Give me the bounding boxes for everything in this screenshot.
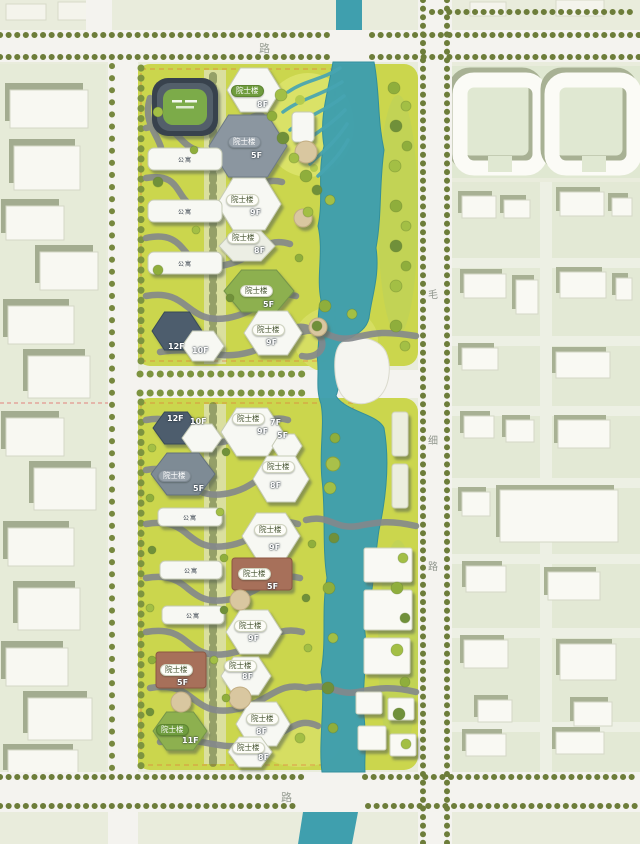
building-badge: 院士楼: [228, 136, 261, 148]
building-label: 院士楼: [233, 137, 256, 146]
building-badge: 院士楼: [226, 194, 259, 206]
floor-label: 9F: [269, 543, 280, 552]
building-badge: 院士楼: [224, 660, 257, 672]
master-plan-canvas: 院士楼 院士楼 院士楼 院士楼 院士楼 院士楼 院士楼 院士楼 院士楼 院士楼 …: [0, 0, 640, 844]
building-label: 院士楼: [251, 714, 274, 723]
floor-label: 5F: [277, 431, 288, 440]
road-label-right-2: 细: [428, 432, 438, 447]
floor-label: 5F: [263, 300, 274, 309]
floor-label: 8F: [257, 100, 268, 109]
floor-label: 8F: [254, 246, 265, 255]
floor-label: 8F: [270, 481, 281, 490]
building-label: 院士楼: [236, 86, 259, 95]
floor-label: 8F: [242, 672, 253, 681]
building-badge: 院士楼: [246, 713, 279, 725]
building-badge: 院士楼: [227, 232, 260, 244]
building-badge: 院士楼: [252, 324, 285, 336]
building-label: 院士楼: [259, 525, 282, 534]
floor-label: 9F: [257, 427, 268, 436]
building-label: 院士楼: [237, 743, 260, 752]
building-label: 院士楼: [237, 414, 260, 423]
apartment-label: 公寓: [186, 611, 200, 620]
building-badge: 院士楼: [156, 724, 189, 736]
road-label-right-1: 毛: [428, 286, 438, 301]
river-island: [326, 457, 340, 471]
floor-label: 5F: [177, 678, 188, 687]
building-label: 院士楼: [163, 471, 186, 480]
building-badge: 院士楼: [262, 461, 295, 473]
building-label: 院士楼: [257, 325, 280, 334]
stadium-building: [152, 78, 218, 136]
floor-label: 11F: [182, 736, 199, 745]
floor-label: 9F: [250, 208, 261, 217]
apartment-label: 公寓: [178, 207, 192, 216]
floor-label: 5F: [193, 484, 204, 493]
building-badge: 院士楼: [238, 568, 271, 580]
building-label: 院士楼: [231, 195, 254, 204]
floor-label: 8F: [258, 753, 269, 762]
building-badge: 院士楼: [231, 85, 264, 97]
building-badge: 院士楼: [234, 620, 267, 632]
floor-label: 7F: [270, 418, 281, 427]
road-label-right-3: 路: [428, 558, 438, 573]
context-left: [0, 2, 106, 776]
building-label: 院士楼: [267, 462, 290, 471]
building-badge: 院士楼: [240, 285, 273, 297]
floor-label: 9F: [248, 634, 259, 643]
apartment-label: 公寓: [178, 259, 192, 268]
floor-label: 5F: [251, 151, 262, 160]
floor-label: 10F: [192, 346, 209, 355]
building-badge: 院士楼: [254, 524, 287, 536]
floor-label: 5F: [267, 582, 278, 591]
building-badge: 院士楼: [232, 413, 265, 425]
floor-label: 9F: [266, 338, 277, 347]
apartment-label: 公寓: [183, 513, 197, 522]
building-label: 院士楼: [239, 621, 262, 630]
site-plan-svg: [0, 0, 640, 844]
building-label: 院士楼: [229, 661, 252, 670]
floor-label: 12F: [168, 342, 185, 351]
building-badge: 院士楼: [158, 470, 191, 482]
floor-label: 8F: [256, 727, 267, 736]
building-badge: 院士楼: [160, 664, 193, 676]
context-right: [452, 0, 640, 772]
riverside-plaza: [335, 338, 390, 404]
road-label-bottom: 路: [281, 789, 292, 805]
apartment-label: 公寓: [184, 566, 198, 575]
floor-label: 12F: [167, 414, 184, 423]
road-label-top: 路: [259, 40, 270, 56]
floor-label: 10F: [190, 417, 207, 426]
building-label: 院士楼: [245, 286, 268, 295]
building-label: 院士楼: [165, 665, 188, 674]
building-label: 院士楼: [161, 725, 184, 734]
apartment-label: 公寓: [178, 155, 192, 164]
building-label: 院士楼: [243, 569, 266, 578]
building-label: 院士楼: [232, 233, 255, 242]
